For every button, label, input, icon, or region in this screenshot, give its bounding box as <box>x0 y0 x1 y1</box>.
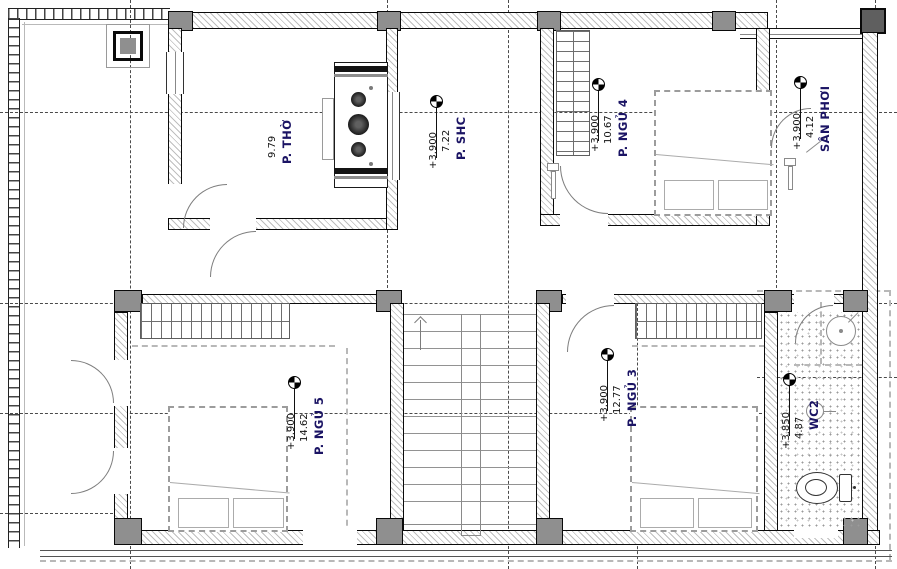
column <box>114 518 142 545</box>
column <box>536 518 563 545</box>
candle-dot <box>369 162 373 166</box>
balcony-railing-top <box>8 8 170 20</box>
tap-fixture-stem <box>788 166 793 190</box>
room-area-ptho: 9.79 <box>267 136 279 158</box>
exterior-wall-top <box>168 12 768 29</box>
column <box>114 290 142 312</box>
toilet-bowl-inner <box>805 479 827 496</box>
stair-landing-line <box>404 524 536 525</box>
door-opening <box>113 448 129 494</box>
drain-tick <box>824 411 836 412</box>
bed-pngu4 <box>654 90 772 216</box>
toilet-tank <box>839 474 852 502</box>
terrace-edge-line <box>40 556 892 557</box>
pillow <box>640 498 694 528</box>
room-name-pngu4: P. NGỦ 4 <box>617 99 629 157</box>
altar-bench <box>322 98 334 160</box>
door-swing-arc <box>183 184 227 228</box>
wardrobe-pngu3 <box>635 303 762 339</box>
overhang-dashed-line <box>632 345 765 347</box>
toilet <box>794 468 856 510</box>
wall-stairhall-right <box>536 303 550 545</box>
overhang-dashed-line <box>132 345 335 347</box>
room-level-pngu3: +3.900 <box>599 385 611 422</box>
column <box>376 518 403 545</box>
level-marker <box>430 95 443 108</box>
pillow <box>233 498 284 528</box>
roof-outline-dashed <box>889 290 891 560</box>
room-level-wc2: +3.850 <box>781 412 793 449</box>
balcony-inner-edge <box>24 22 25 546</box>
roof-outline-dashed <box>40 560 892 562</box>
candle-dot <box>369 86 373 90</box>
column <box>712 11 736 31</box>
room-area-pngu5: 14.62 <box>299 413 311 442</box>
door-swing-arc <box>71 360 114 403</box>
centerline-vertical <box>776 0 777 303</box>
shower-screen-dashed <box>794 364 862 366</box>
incense-bowl <box>351 142 366 157</box>
tap-fixture <box>547 163 559 171</box>
staircase <box>404 308 536 544</box>
wall-niche <box>794 530 838 538</box>
room-area-pshc: 7.22 <box>441 130 453 152</box>
door-opening <box>113 360 129 406</box>
door-opening <box>794 293 834 305</box>
toilet-button <box>853 486 856 489</box>
level-marker <box>592 78 605 91</box>
door-swing-arc <box>795 305 833 343</box>
pillow <box>718 180 768 210</box>
overhang-dashed-line <box>346 348 348 546</box>
room-name-ptho: P. THỜ <box>281 119 293 164</box>
pillow <box>178 498 229 528</box>
window <box>166 52 184 94</box>
wardrobe-pngu5 <box>140 303 290 339</box>
door-opening <box>560 213 608 227</box>
blanket-fold-line <box>632 482 760 494</box>
column <box>843 290 868 312</box>
corner-column <box>860 8 886 34</box>
room-name-sanphoi: SÂN PHƠI <box>819 86 831 152</box>
stair-up-arrow-stem <box>420 320 421 350</box>
column <box>764 290 792 312</box>
stair-stringer <box>461 314 481 536</box>
level-marker <box>783 373 796 386</box>
wall-wc2-left <box>764 312 778 532</box>
shower-drain-dot <box>839 329 843 333</box>
room-area-pngu4: 10.67 <box>603 115 615 144</box>
centerline-vertical <box>130 0 131 569</box>
door-swing-arc <box>567 305 614 352</box>
incense-bowl <box>351 92 366 107</box>
door-opening <box>303 529 357 546</box>
room-name-pngu3: P. NGỦ 3 <box>626 369 638 427</box>
door-opening <box>566 293 614 305</box>
altar-top-band <box>334 66 388 72</box>
wardrobe-pngu4 <box>556 30 590 156</box>
room-level-pngu4: +3.900 <box>590 115 602 152</box>
level-marker <box>288 376 301 389</box>
altar-bottom-band2 <box>334 176 388 179</box>
wall-stairhall-left <box>390 303 404 545</box>
tap-fixture <box>784 158 796 166</box>
room-name-wc2: WC2 <box>808 400 820 430</box>
room-area-wc2: 4.87 <box>794 417 806 439</box>
door-swing-arc <box>560 166 608 214</box>
altar-top-band2 <box>334 74 388 77</box>
door-swing-arc <box>210 231 256 277</box>
room-name-pshc: P. SHC <box>455 117 467 160</box>
altar-bottom-band <box>334 168 388 174</box>
room-area-sanphoi: 4.12 <box>805 116 817 138</box>
balcony-column-core <box>120 38 136 54</box>
terrace-edge-line <box>40 550 892 551</box>
room-level-pngu5: +3.900 <box>286 413 298 450</box>
level-marker <box>601 348 614 361</box>
room-name-pngu5: P. NGỦ 5 <box>313 397 325 455</box>
incense-bowl-large <box>348 114 369 135</box>
blanket-fold-line <box>656 154 774 165</box>
door-swing-arc <box>71 451 114 494</box>
bed-pngu5 <box>168 406 288 532</box>
exterior-wall-right <box>862 32 878 545</box>
blanket-fold-line <box>170 482 290 493</box>
pillow <box>698 498 752 528</box>
room-area-pngu3: 12.77 <box>612 385 624 414</box>
room-level-sanphoi: +3.900 <box>792 113 804 150</box>
balcony-railing-left <box>8 18 20 548</box>
tap-fixture-stem <box>551 171 556 199</box>
bed-pngu3 <box>630 406 758 532</box>
pillow <box>664 180 714 210</box>
floor-plan-canvas: P. THỜ 9.79 +3.900 7.22 P. SHC +3.900 10… <box>0 0 897 569</box>
level-marker <box>794 76 807 89</box>
room-level-pshc: +3.900 <box>428 132 440 169</box>
